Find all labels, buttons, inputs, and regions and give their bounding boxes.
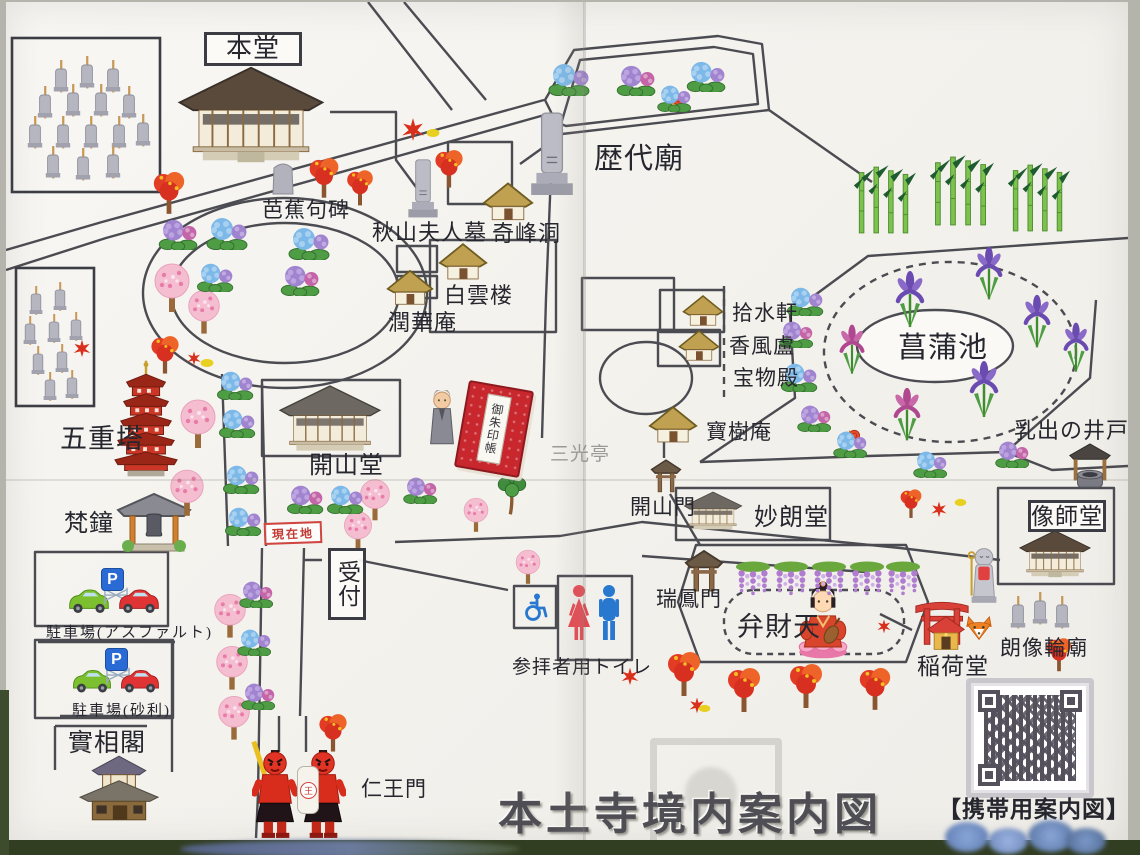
label-basho-haiku-stone: 芭蕉句碑 [262,200,350,221]
label-nio-mon: 仁王門 [361,779,427,800]
qr-code [966,678,1094,798]
kaisando-building [280,386,380,451]
label-benzaiten: 弁財天 [737,614,821,641]
label-goshuincho: 御朱印帳 [481,402,507,456]
label-hoju-an: 寶樹庵 [706,422,772,443]
fox-icon [967,617,991,640]
main-hall-building [180,68,323,162]
jusuiken-hut [684,296,723,325]
label-junka-an: 潤華庵 [388,312,457,334]
label-milk-well: 乳出の井戸 [1014,420,1129,442]
hydrangea-photo-blob [945,822,989,852]
wheelchair-icon [527,594,547,620]
label-kaisan-do: 開山堂 [309,454,384,478]
cemetery-plot-upper [12,38,160,192]
label-five-story-pagoda: 五重塔 [60,426,144,453]
label-inari-do: 稲荷堂 [917,655,989,678]
hakuunro-hut [440,244,486,279]
man-icon [599,585,619,640]
five-story-pagoda-icon [115,361,177,477]
label-iris-pond: 菖蒲池 [898,334,988,363]
car-icons-lower [74,668,159,693]
basho-stone-icon [273,164,293,194]
zoshido-building [1020,531,1090,577]
label-treasure-hall: 宝物殿 [733,368,799,389]
parking-sign-icon: P [105,648,128,671]
label-zuiho-mon: 瑞鳳門 [656,589,722,610]
hydrangea-photo-blob [988,828,1028,854]
label-myoro-do: 妙朗堂 [754,506,829,530]
label-akiyama-wife-grave: 秋山夫人墓 [372,222,487,244]
goshuincho-strip: 御朱印帳 [476,393,511,464]
label-hakuun-ro: 白雲楼 [444,285,513,307]
fold-shade [554,2,584,847]
car-icons-upper [70,588,159,613]
hydrangea-photo-strip [180,840,520,855]
rozo-graves-icon [1011,592,1069,628]
photo-of-map-poster: 本堂 歴代廟 芭蕉句碑 秋山夫人墓 奇峰洞 白雲楼 潤華庵 拾水軒 香風盧 宝物… [0,0,1140,855]
label-kiho-cave: 奇峰洞 [492,223,561,245]
poster-crease [6,479,1128,481]
label-parking-asphalt: 駐車場(アスファルト) [46,626,213,641]
label-temple-bell: 梵鐘 [64,512,114,536]
qr-caption: 【携帯用案内図】 [938,798,1130,821]
bell-tower-icon [118,494,190,552]
cemetery-plot-lower [16,268,94,406]
label-jusui-ken: 拾水軒 [732,303,798,324]
foliage-left [0,690,9,855]
kofuro-hut [680,331,719,360]
kiho-cave-hut [484,183,532,219]
label-rozo-rinbyo: 朗像輪廟 [1000,638,1088,659]
figures-layer [70,94,997,838]
label-jisso-kaku: 實相閣 [68,731,146,756]
akiyama-monument-icon [408,160,437,218]
label-kofu-ro: 香風盧 [729,336,795,357]
label-parking-gravel: 駐車場(砂利) [72,704,171,719]
poster-seam [583,2,586,847]
label-zoshi-do: 像師堂 [1028,500,1106,532]
label-reception: 受付 [328,548,366,620]
label-rekidai-mausoleum: 歴代廟 [594,145,684,174]
parking-sign-icon: P [101,568,124,591]
monk-icon [431,388,454,444]
hydrangea-photo-blob [1066,828,1106,854]
nio-guardian-left-icon [251,741,295,838]
map-poster: 本堂 歴代廟 芭蕉句碑 秋山夫人墓 奇峰洞 白雲楼 潤華庵 拾水軒 香風盧 宝物… [6,2,1128,847]
nio-lantern-mark: 王 [300,782,317,799]
you-are-here-stamp: 現在地 [264,521,323,545]
label-kaisan-mon: 開山門 [630,497,696,518]
label-main-hall: 本堂 [204,32,302,66]
jissokaku-building [80,756,158,820]
